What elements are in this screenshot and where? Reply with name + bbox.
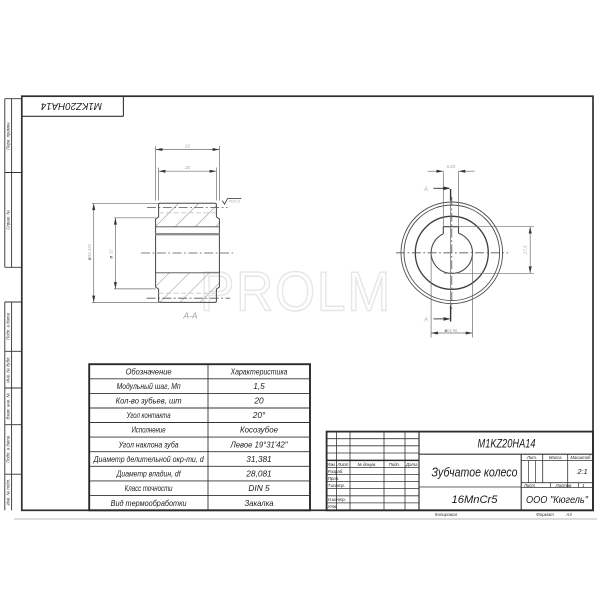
svg-text:Н.контр.: Н.контр. bbox=[328, 497, 346, 502]
svg-text:А: А bbox=[423, 186, 428, 193]
svg-text:Диаметр впадин, df: Диаметр впадин, df bbox=[116, 469, 182, 479]
svg-text:Угол контакта: Угол контакта bbox=[126, 410, 171, 420]
svg-text:Перв. примен.: Перв. примен. bbox=[6, 121, 11, 150]
svg-text:M1KZ20HA14: M1KZ20HA14 bbox=[41, 100, 102, 112]
svg-text:№ докум.: № докум. bbox=[357, 462, 376, 467]
svg-text:14,96: 14,96 bbox=[447, 328, 458, 333]
svg-text:Копировал: Копировал bbox=[435, 512, 458, 517]
svg-text:25: 25 bbox=[109, 249, 114, 256]
svg-text:Лит.: Лит. bbox=[526, 455, 537, 460]
svg-text:Лист: Лист bbox=[336, 462, 348, 467]
svg-text:Rz0.8: Rz0.8 bbox=[229, 199, 240, 204]
svg-text:22: 22 bbox=[184, 143, 191, 148]
svg-text:1,5: 1,5 bbox=[253, 381, 265, 391]
svg-text:Зубчатое колесо: Зубчатое колесо bbox=[432, 465, 518, 480]
svg-text:17,3: 17,3 bbox=[523, 245, 528, 254]
svg-text:Модульный шаг, Мп: Модульный шаг, Мп bbox=[117, 381, 181, 391]
svg-text:20: 20 bbox=[253, 396, 264, 406]
svg-text:28,081: 28,081 bbox=[245, 469, 271, 479]
svg-text:Закалка: Закалка bbox=[245, 498, 274, 508]
svg-text:Характеристика: Характеристика bbox=[230, 366, 288, 376]
svg-text:Обозначение: Обозначение bbox=[126, 366, 172, 376]
svg-text:Лист: Лист bbox=[523, 483, 535, 488]
svg-text:ø: ø bbox=[110, 256, 115, 259]
svg-text:Разраб.: Разраб. bbox=[328, 469, 344, 474]
svg-text:Косозубое: Косозубое bbox=[240, 425, 278, 435]
svg-text:M1KZ20HA14: M1KZ20HA14 bbox=[478, 438, 536, 450]
svg-text:Дата: Дата bbox=[405, 462, 418, 467]
svg-text:ООО "Кюгель": ООО "Кюгель" bbox=[526, 494, 589, 506]
svg-text:20: 20 bbox=[184, 165, 191, 170]
svg-text:Исполнение: Исполнение bbox=[132, 425, 166, 435]
svg-text:Листов: Листов bbox=[555, 483, 572, 488]
svg-text:5,83: 5,83 bbox=[447, 164, 456, 169]
svg-text:31,381: 31,381 bbox=[246, 454, 271, 464]
svg-text:Справ. №: Справ. № bbox=[6, 210, 11, 230]
svg-text:Кол-во зубьев, шт: Кол-во зубьев, шт bbox=[116, 396, 182, 406]
svg-text:DIN 5: DIN 5 bbox=[248, 483, 270, 493]
svg-text:34.431: 34.431 bbox=[87, 243, 92, 257]
svg-text:А3: А3 bbox=[565, 512, 572, 517]
svg-text:20°: 20° bbox=[252, 410, 266, 420]
svg-text:2:1: 2:1 bbox=[576, 467, 587, 476]
svg-text:А-А: А-А bbox=[182, 311, 198, 321]
svg-text:Масса: Масса bbox=[549, 455, 562, 460]
svg-text:Т.контр.: Т.контр. bbox=[328, 483, 345, 488]
svg-text:Масштаб: Масштаб bbox=[570, 455, 591, 460]
svg-text:Левое 19°31'42": Левое 19°31'42" bbox=[230, 439, 289, 449]
svg-text:Инв. № подл.: Инв. № подл. bbox=[6, 479, 11, 506]
svg-text:Угол наклона зуба: Угол наклона зуба bbox=[118, 439, 179, 449]
svg-text:Изм.: Изм. bbox=[327, 462, 336, 467]
svg-text:Вид термообработки: Вид термообработки bbox=[111, 498, 187, 508]
svg-text:Утв.: Утв. bbox=[328, 504, 338, 509]
svg-text:Взам. инв. №: Взам. инв. № bbox=[6, 393, 11, 420]
svg-text:Диаметр делительной окр-ти, d: Диаметр делительной окр-ти, d bbox=[93, 454, 204, 464]
svg-text:Подп. и дата: Подп. и дата bbox=[6, 313, 11, 341]
svg-text:Инв. № дубл.: Инв. № дубл. bbox=[6, 356, 11, 382]
svg-text:Подп. и дата: Подп. и дата bbox=[6, 435, 11, 463]
svg-text:А: А bbox=[423, 316, 428, 323]
svg-text:Пров.: Пров. bbox=[328, 476, 339, 481]
svg-text:PROLM: PROLM bbox=[200, 260, 392, 323]
svg-text:16MnCr5: 16MnCr5 bbox=[452, 494, 499, 506]
svg-text:Подп.: Подп. bbox=[389, 462, 400, 467]
svg-text:Формат: Формат bbox=[536, 512, 554, 517]
svg-text:Класс точности: Класс точности bbox=[125, 483, 173, 493]
